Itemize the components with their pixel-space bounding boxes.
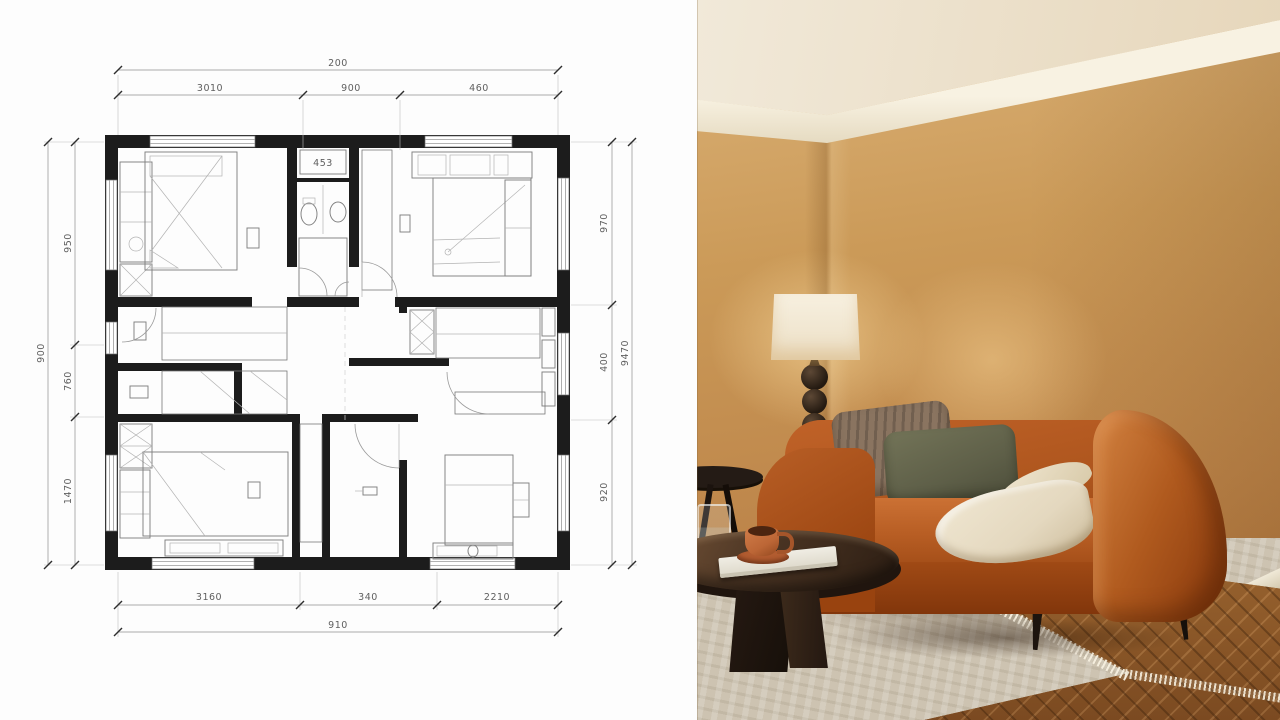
bedroom-top-left [120, 152, 259, 296]
dim-right-seg3: 920 [599, 482, 610, 502]
bathroom: 453 [299, 150, 349, 296]
windows [106, 136, 569, 569]
interior-walls [105, 148, 570, 557]
coffee-cup-interior [748, 526, 776, 536]
stair-shaft [300, 424, 322, 542]
floor-plan-panel: 453 [0, 0, 697, 720]
dim-left-seg2: 760 [63, 371, 74, 391]
bedroom-bottom-right [355, 424, 529, 559]
dim-top-seg1: 3010 [197, 83, 223, 94]
floor-lamp-orb [802, 389, 827, 414]
panel-divider [697, 0, 698, 720]
dim-right-seg1: 970 [599, 213, 610, 233]
dim-left-seg1: 950 [63, 233, 74, 253]
bathroom-label: 453 [313, 158, 333, 169]
stair-hall-left [122, 307, 287, 414]
floor-lamp-orb [801, 364, 828, 390]
living-room-photo [697, 0, 1280, 720]
bedroom-top-right [362, 150, 532, 297]
dim-top-seg3: 460 [469, 83, 489, 94]
dim-bottom-seg1: 3160 [196, 592, 222, 603]
dim-bottom-seg2: 340 [358, 592, 378, 603]
dimensions-left: 950 760 1470 900 [36, 138, 104, 569]
bedroom-bottom-left [120, 424, 288, 556]
dimensions-right: 970 400 920 9470 [571, 138, 637, 569]
dim-bottom-seg3: 2210 [484, 592, 510, 603]
dim-top-total: 200 [328, 58, 348, 69]
screenshot-stage: 453 [0, 0, 1280, 720]
outer-walls [105, 135, 570, 570]
dim-bottom-total: 910 [328, 620, 348, 631]
dim-left-total: 900 [36, 343, 47, 363]
floor-lamp-shade [771, 294, 860, 360]
dim-right-total: 9470 [620, 340, 631, 366]
floor-plan-drawing: 453 [0, 0, 697, 720]
dimensions-bottom: 3160 340 2210 910 [114, 572, 562, 637]
dim-right-seg2: 400 [599, 352, 610, 372]
dim-top-seg2: 900 [341, 83, 361, 94]
dim-left-seg3: 1470 [63, 478, 74, 504]
